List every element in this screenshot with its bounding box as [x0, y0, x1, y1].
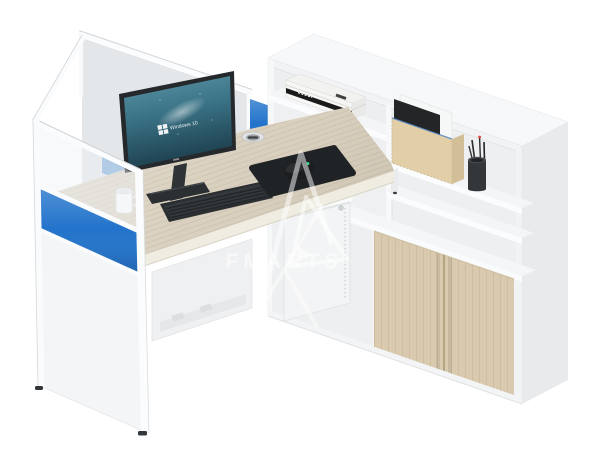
door-handle-groove-right	[448, 257, 452, 374]
cable-grommet	[242, 132, 264, 142]
cabinet-right-side	[522, 122, 568, 404]
partition-foot-right	[138, 431, 147, 436]
screen-star-4	[211, 119, 212, 120]
desk-leg-foot	[393, 192, 397, 194]
watermark-text: FMARTS	[225, 250, 344, 273]
screen-star-1	[159, 99, 160, 100]
corner-strut-edge	[32, 35, 82, 121]
partition-foot-left	[35, 386, 43, 390]
corner-strut	[34, 36, 84, 122]
workstation-product-render: Windows 10 FMARTS	[0, 0, 600, 450]
pen-cup-body	[468, 160, 486, 191]
pedestal-lock	[339, 206, 343, 210]
screen-star-3	[177, 133, 178, 134]
door-handle-groove-left	[436, 253, 440, 370]
render-scene: Windows 10 FMARTS	[0, 0, 600, 450]
file-box-side	[452, 134, 464, 184]
side-left-post	[36, 120, 41, 387]
pencil-red-cap	[478, 136, 481, 139]
pen-cup-inner	[471, 158, 484, 162]
screen-star-2	[199, 93, 200, 94]
